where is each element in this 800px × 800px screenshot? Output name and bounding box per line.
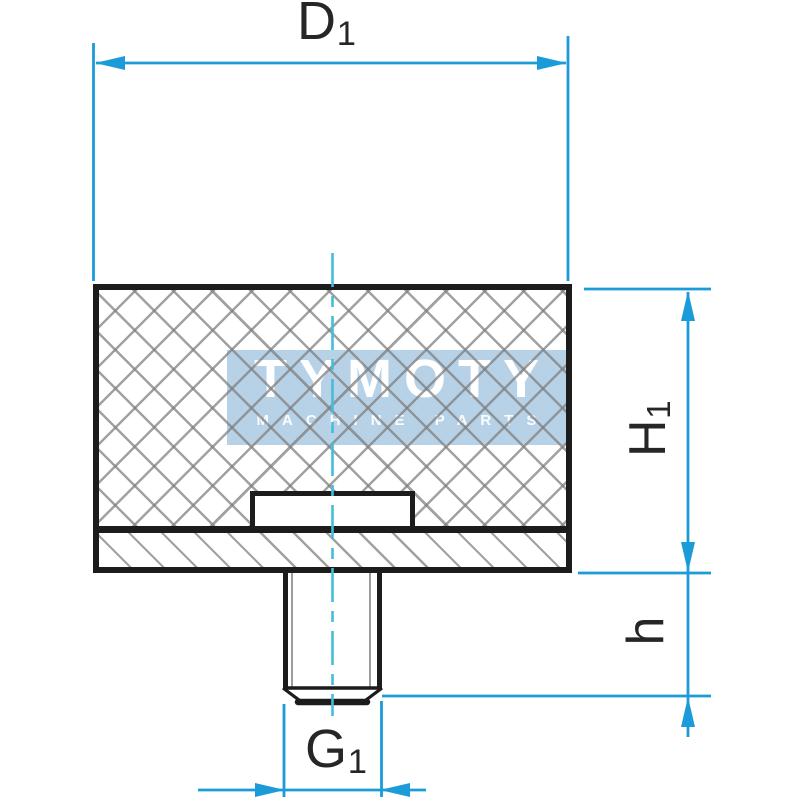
label-h: h: [620, 617, 672, 646]
label-h1: H1: [622, 401, 674, 457]
label-g1: G1: [305, 722, 366, 776]
drawing-line-overlay: [0, 0, 800, 800]
dimension-d1: [94, 36, 569, 281]
dimension-h1: [578, 289, 711, 737]
label-d1: D1: [297, 0, 355, 48]
technical-drawing-canvas: TYMOTY MACHINE PARTS: [0, 0, 800, 800]
dimension-h: [382, 696, 711, 727]
